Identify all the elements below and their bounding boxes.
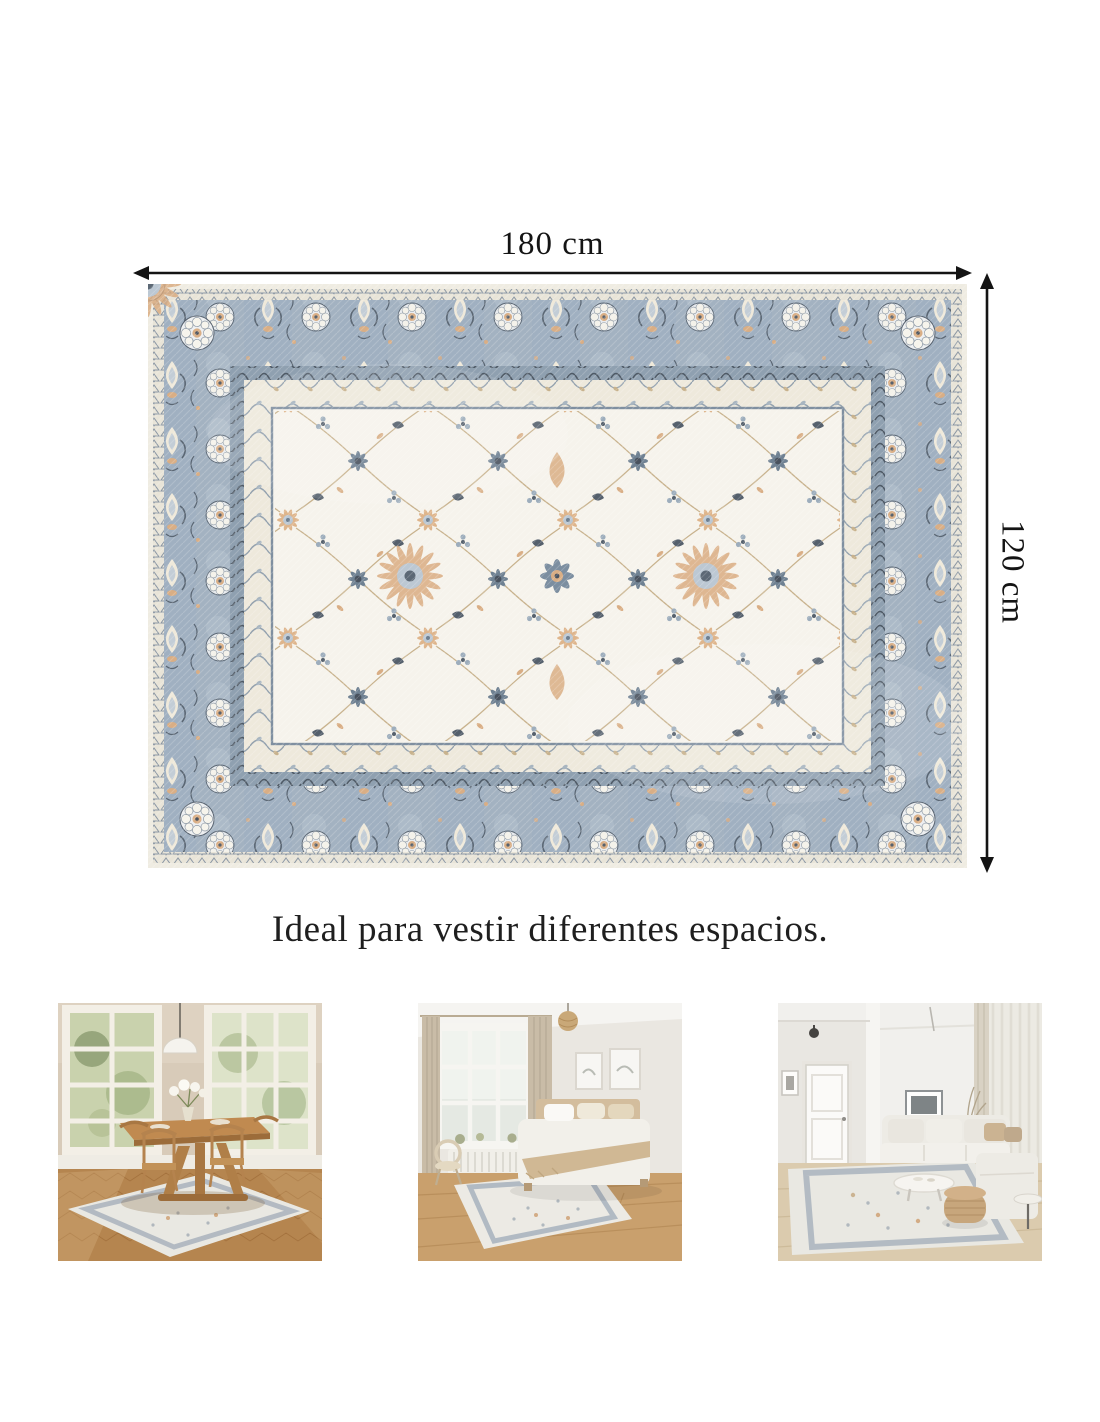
baseboard	[58, 1155, 322, 1169]
page-root: 180 cm 120 cm	[0, 0, 1100, 1422]
rug-product-image	[148, 284, 967, 868]
vertical-dimension-arrow	[973, 270, 1003, 876]
gallery-photo-dining-room	[58, 1003, 322, 1261]
gallery-photo-living-room	[778, 1003, 1042, 1261]
bed	[518, 1099, 650, 1191]
rug-image	[148, 284, 967, 868]
gallery-photo-bedroom	[418, 1003, 682, 1261]
room-gallery	[58, 1003, 1042, 1261]
door	[802, 1061, 852, 1169]
pouf-ottoman	[942, 1186, 988, 1229]
headline-text: Ideal para vestir diferentes espacios.	[0, 908, 1100, 951]
